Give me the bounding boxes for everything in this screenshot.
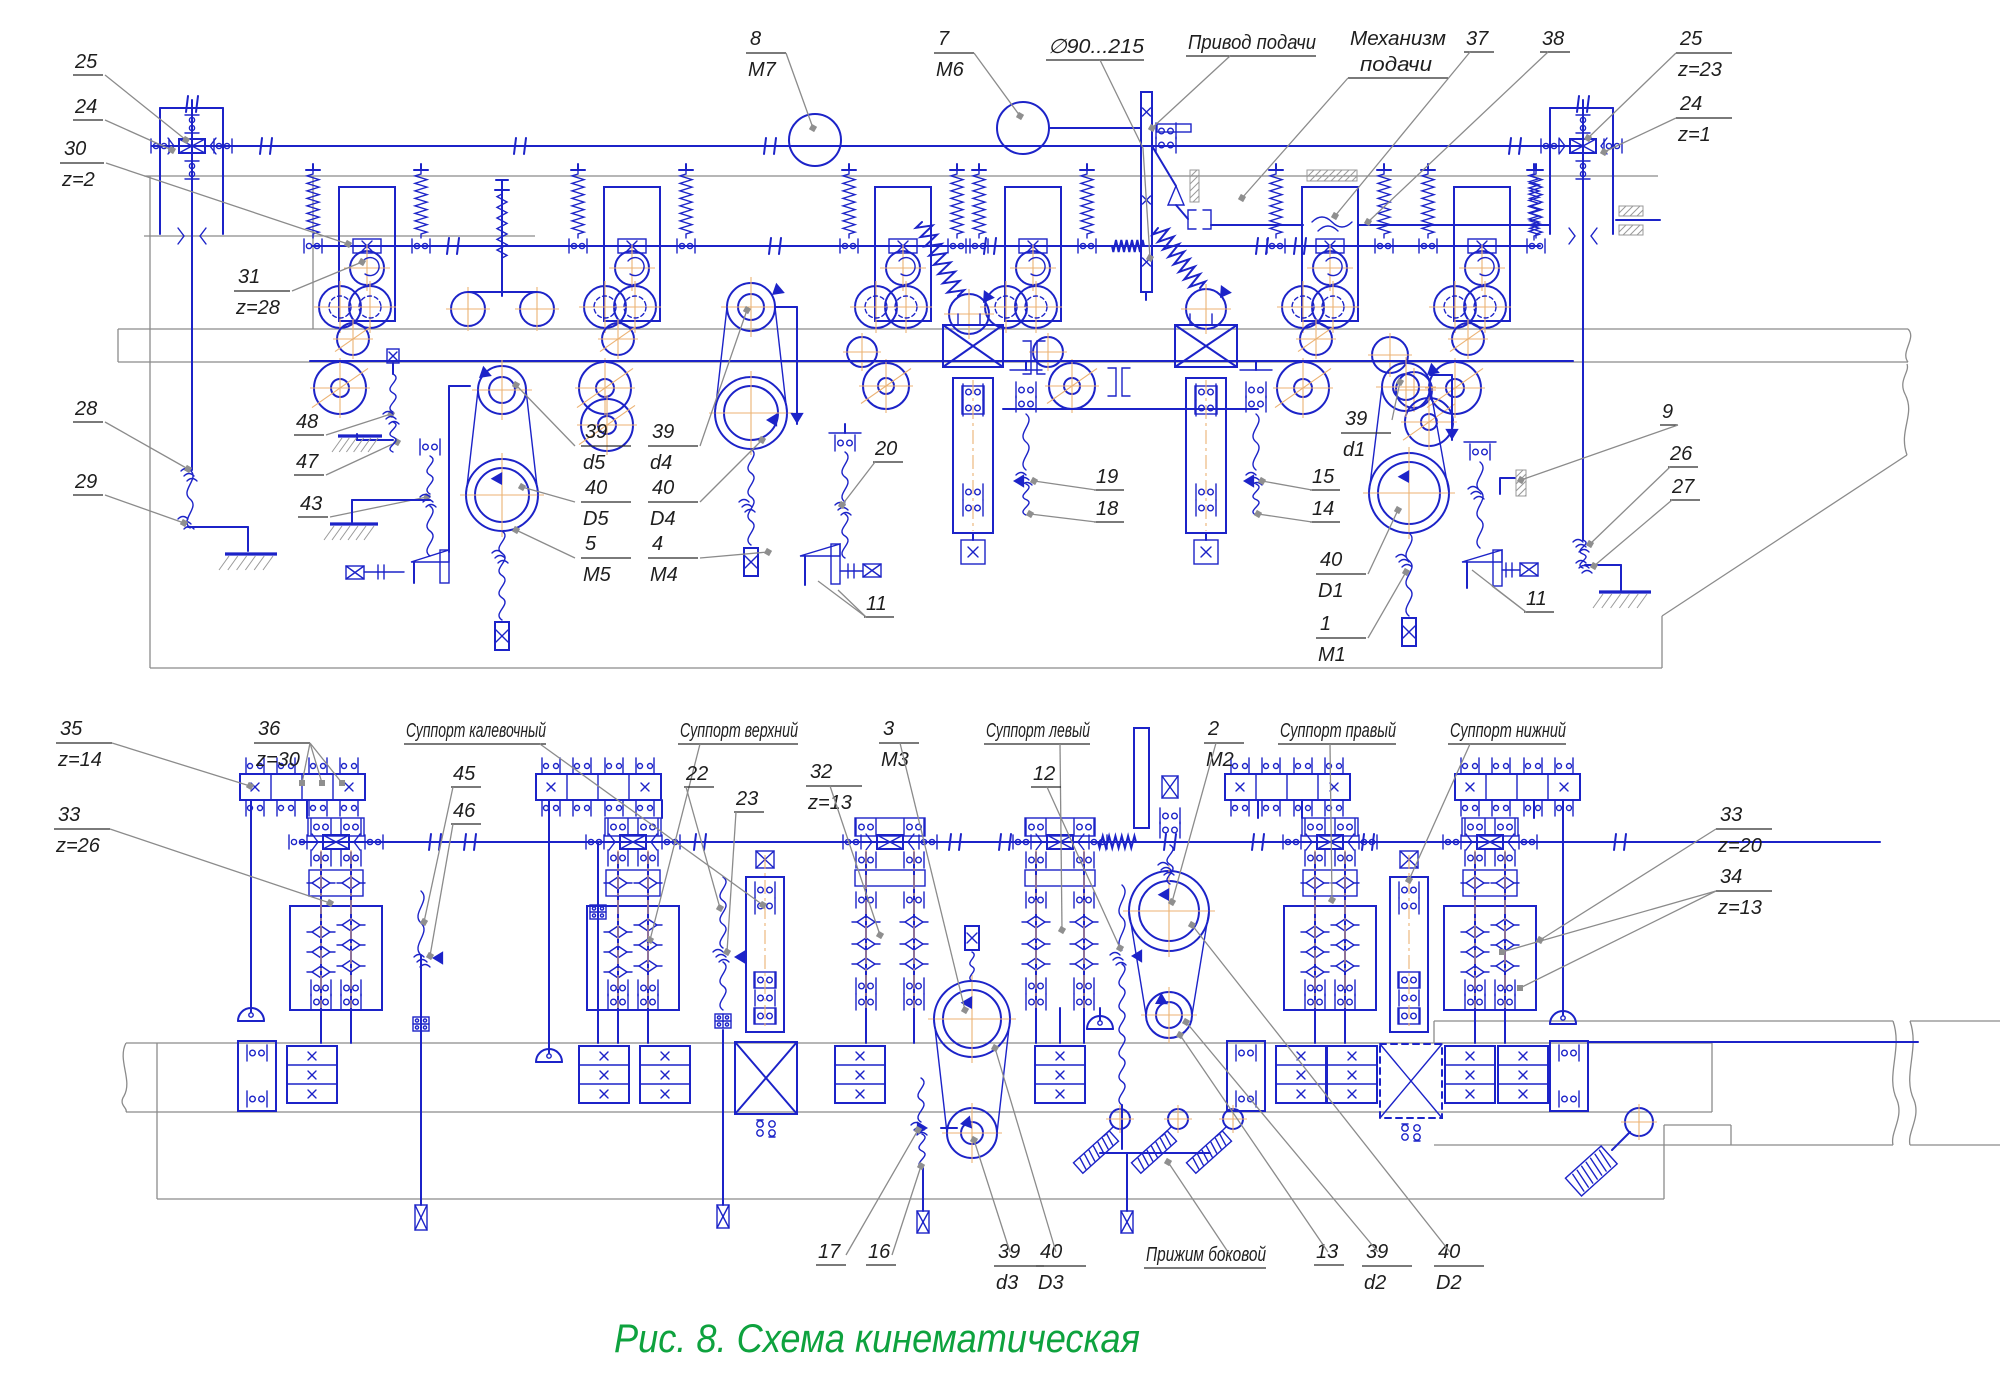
svg-text:25: 25 xyxy=(1679,28,1703,50)
svg-text:38: 38 xyxy=(1542,28,1564,50)
svg-text:17: 17 xyxy=(818,1241,841,1263)
svg-text:13: 13 xyxy=(1316,1241,1338,1263)
svg-text:Суппорт нижний: Суппорт нижний xyxy=(1450,720,1566,742)
svg-text:27: 27 xyxy=(1671,476,1695,498)
svg-text:2: 2 xyxy=(1207,718,1219,740)
svg-text:22: 22 xyxy=(685,763,708,785)
svg-text:40: 40 xyxy=(1040,1241,1062,1263)
svg-text:11: 11 xyxy=(1526,588,1547,610)
svg-text:28: 28 xyxy=(74,398,97,420)
svg-text:z=2: z=2 xyxy=(61,169,95,191)
svg-text:37: 37 xyxy=(1466,28,1489,50)
svg-text:40: 40 xyxy=(1438,1241,1460,1263)
svg-text:z=23: z=23 xyxy=(1677,59,1722,81)
svg-text:z=20: z=20 xyxy=(1717,835,1762,857)
svg-text:33: 33 xyxy=(1720,804,1742,826)
svg-text:М5: М5 xyxy=(583,564,612,586)
svg-text:d2: d2 xyxy=(1364,1272,1386,1294)
svg-text:М2: М2 xyxy=(1206,749,1234,771)
svg-text:19: 19 xyxy=(1096,466,1118,488)
svg-text:29: 29 xyxy=(74,471,97,493)
svg-text:36: 36 xyxy=(258,718,281,740)
svg-text:4: 4 xyxy=(652,533,663,555)
svg-text:39: 39 xyxy=(585,421,607,443)
svg-text:Суппорт верхний: Суппорт верхний xyxy=(680,720,798,742)
svg-text:z=13: z=13 xyxy=(1717,897,1762,919)
svg-text:1: 1 xyxy=(1320,613,1331,635)
svg-text:D5: D5 xyxy=(583,508,609,530)
svg-text:z=30: z=30 xyxy=(255,749,300,771)
svg-text:39: 39 xyxy=(998,1241,1020,1263)
svg-text:31: 31 xyxy=(238,266,260,288)
svg-text:М1: М1 xyxy=(1318,644,1346,666)
svg-text:47: 47 xyxy=(296,451,319,473)
svg-text:Привод подачи: Привод подачи xyxy=(1188,32,1316,54)
svg-text:D1: D1 xyxy=(1318,580,1344,602)
svg-text:23: 23 xyxy=(735,788,758,810)
svg-text:34: 34 xyxy=(1720,866,1742,888)
svg-text:d5: d5 xyxy=(583,452,606,474)
svg-text:46: 46 xyxy=(453,800,476,822)
svg-text:14: 14 xyxy=(1312,498,1334,520)
svg-text:40: 40 xyxy=(652,477,674,499)
svg-text:48: 48 xyxy=(296,411,318,433)
svg-text:24: 24 xyxy=(74,96,97,118)
svg-text:18: 18 xyxy=(1096,498,1118,520)
svg-text:25: 25 xyxy=(74,51,98,73)
svg-text:24: 24 xyxy=(1679,93,1702,115)
svg-text:33: 33 xyxy=(58,804,80,826)
svg-text:39: 39 xyxy=(1366,1241,1388,1263)
svg-text:d4: d4 xyxy=(650,452,672,474)
svg-text:39: 39 xyxy=(652,421,674,443)
svg-text:8: 8 xyxy=(750,28,761,50)
svg-text:30: 30 xyxy=(64,138,86,160)
svg-text:12: 12 xyxy=(1033,763,1055,785)
svg-text:7: 7 xyxy=(938,28,950,50)
svg-text:Суппорт левый: Суппорт левый xyxy=(986,720,1090,742)
svg-text:40: 40 xyxy=(1320,549,1342,571)
svg-text:D2: D2 xyxy=(1436,1272,1462,1294)
svg-text:d3: d3 xyxy=(996,1272,1018,1294)
svg-text:9: 9 xyxy=(1662,401,1673,423)
svg-text:z=26: z=26 xyxy=(55,835,101,857)
svg-text:z=1: z=1 xyxy=(1677,124,1711,146)
svg-text:М4: М4 xyxy=(650,564,678,586)
svg-text:подачи: подачи xyxy=(1360,54,1432,76)
svg-text:32: 32 xyxy=(810,761,832,783)
svg-text:z=13: z=13 xyxy=(807,792,852,814)
svg-text:∅90...215: ∅90...215 xyxy=(1048,36,1145,58)
svg-text:40: 40 xyxy=(585,477,607,499)
svg-text:М6: М6 xyxy=(936,59,965,81)
svg-text:35: 35 xyxy=(60,718,83,740)
svg-text:Механизм: Механизм xyxy=(1350,28,1446,50)
svg-text:16: 16 xyxy=(868,1241,891,1263)
svg-text:45: 45 xyxy=(453,763,476,785)
svg-text:Суппорт калевочный: Суппорт калевочный xyxy=(406,720,546,742)
svg-text:D4: D4 xyxy=(650,508,676,530)
svg-text:20: 20 xyxy=(874,438,897,460)
svg-text:Суппорт правый: Суппорт правый xyxy=(1280,720,1396,742)
svg-text:Прижим боковой: Прижим боковой xyxy=(1146,1244,1266,1266)
svg-text:М7: М7 xyxy=(748,59,777,81)
svg-text:3: 3 xyxy=(883,718,894,740)
svg-text:z=14: z=14 xyxy=(57,749,102,771)
svg-text:15: 15 xyxy=(1312,466,1335,488)
svg-text:z=28: z=28 xyxy=(235,297,280,319)
svg-text:d1: d1 xyxy=(1343,439,1365,461)
svg-text:11: 11 xyxy=(866,593,887,615)
svg-text:43: 43 xyxy=(300,493,322,515)
svg-text:D3: D3 xyxy=(1038,1272,1064,1294)
svg-text:5: 5 xyxy=(585,533,597,555)
svg-text:39: 39 xyxy=(1345,408,1367,430)
svg-text:26: 26 xyxy=(1669,443,1693,465)
svg-text:Рис. 8. Схема кинематическая: Рис. 8. Схема кинематическая xyxy=(614,1317,1140,1361)
